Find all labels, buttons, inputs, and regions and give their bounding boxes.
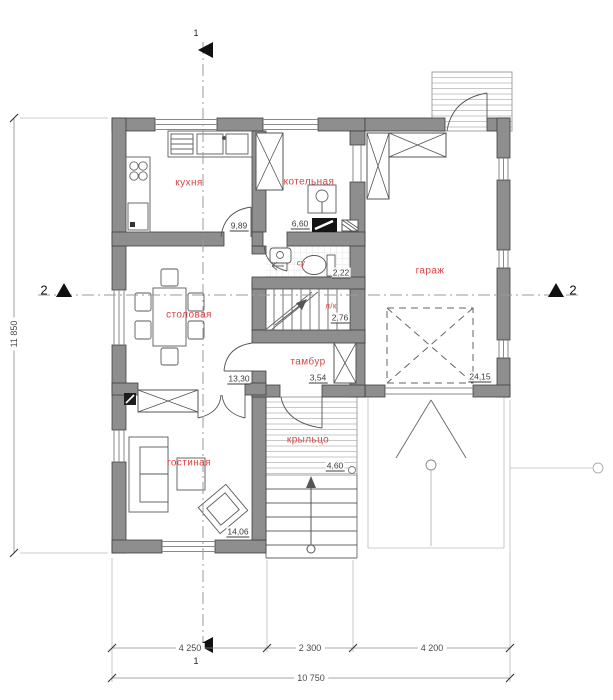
room-label-staircase: л/к	[325, 302, 337, 311]
garage-parking-spot	[387, 308, 473, 383]
chair	[188, 321, 204, 339]
fireplace	[124, 390, 198, 412]
window-living-bottom	[162, 542, 215, 552]
room-area-staircase: 2,76	[331, 313, 350, 324]
living-double-doors	[198, 395, 245, 418]
kitchen-boiler-shaft	[256, 133, 283, 190]
steps-up-arrow	[306, 476, 316, 488]
room-label-living: гостиная	[167, 458, 211, 469]
window-kitchen-top	[155, 120, 217, 130]
garage-driveway	[368, 397, 603, 548]
room-label-vestibule: тамбур	[290, 357, 325, 368]
room-label-dining: столовая	[166, 310, 212, 321]
room-area-garage: 24,15	[468, 372, 491, 383]
floor-plan-drawing	[0, 0, 613, 700]
room-area-living: 14,06	[226, 527, 249, 538]
room-label-bathroom: су	[297, 259, 306, 268]
section-number-2-right: 2	[569, 283, 576, 298]
boiler-icon	[308, 185, 336, 213]
room-area-porch: 4,60	[326, 461, 345, 472]
room-area-vestibule: 3,54	[309, 373, 328, 384]
room-area-bathroom: 2,22	[332, 268, 351, 279]
toilet-icon	[302, 255, 335, 276]
room-area-kitchen: 9,89	[230, 221, 249, 232]
room-label-kitchen: кухня	[175, 178, 202, 189]
window-dining-left	[114, 290, 124, 345]
room-area-boiler: 6,60	[291, 219, 310, 230]
section-number-1-top: 1	[193, 28, 198, 38]
room-label-boiler: котельная	[284, 177, 335, 188]
window-boiler-top	[263, 120, 318, 130]
section-arrow-2-right	[548, 283, 564, 297]
section-number-2-left: 2	[40, 283, 47, 298]
porch-steps	[266, 467, 357, 559]
window-living-left	[114, 430, 124, 462]
sink-icon	[197, 134, 223, 154]
chair	[188, 293, 204, 311]
section-arrow-1-top	[198, 42, 213, 58]
dim-bottom-seg-1: 4 250	[176, 643, 205, 653]
floor-plan-page: кухня 9,89 котельная 6,60 су 2,22 л/к 2,…	[0, 0, 613, 700]
chair	[161, 348, 178, 365]
dim-left-total: 11 850	[9, 318, 19, 351]
vestibule-dining-door	[224, 343, 252, 371]
living-furniture	[129, 437, 248, 534]
room-area-dining: 13,30	[227, 374, 250, 385]
chair	[135, 293, 151, 311]
washbasin-icon	[270, 248, 291, 263]
section-arrow-2-left	[56, 283, 72, 297]
dim-bottom-seg-2: 2 300	[296, 643, 325, 653]
room-label-porch: крыльцо	[287, 435, 329, 446]
section-number-1-bottom: 1	[193, 656, 198, 666]
boiler-flue-icon	[312, 218, 358, 232]
dim-bottom-total: 10 750	[294, 673, 328, 683]
room-label-garage: гараж	[416, 266, 445, 277]
garage-shaft-l	[367, 133, 446, 199]
chair	[135, 321, 151, 339]
vestibule-shaft	[334, 343, 356, 383]
sofa	[129, 437, 168, 512]
dim-bottom-seg-3: 4 200	[418, 643, 447, 653]
chair	[161, 269, 178, 286]
